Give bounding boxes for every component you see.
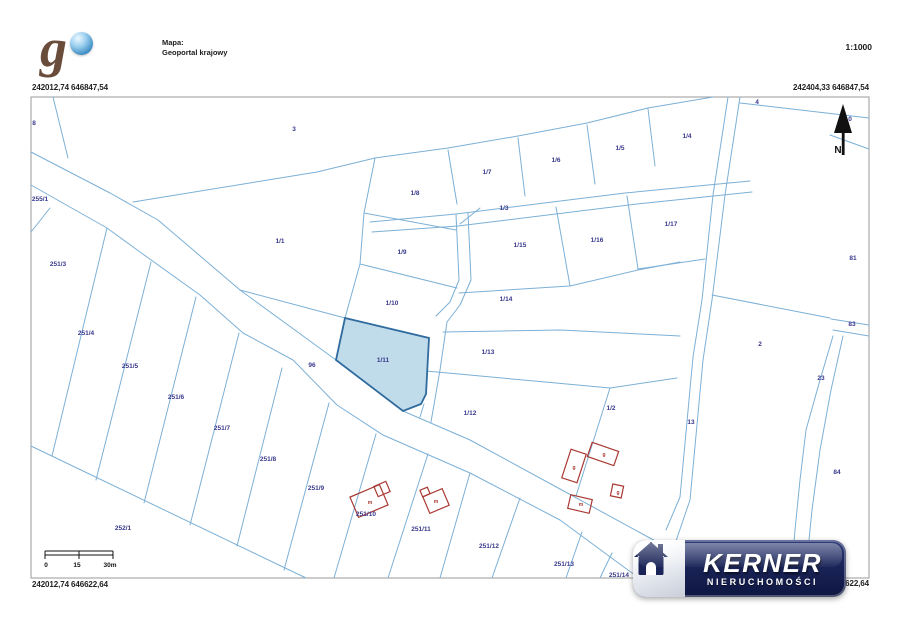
parcel-label: 255/1 [32,196,49,203]
building-label: m [579,502,584,508]
parcel-label: 251/14 [609,572,629,579]
house-icon [633,540,685,597]
parcel-label: 1/14 [500,296,513,303]
parcel-label: 2 [758,341,762,348]
parcel-label: 251/6 [168,394,185,401]
parcel-label: 1/3 [499,205,508,212]
parcel-label: 1/12 [464,410,477,417]
parcel-label: 4 [755,99,759,106]
parcel-label: 251/7 [214,425,231,432]
parcel-label: 251/3 [50,261,67,268]
parcel-label: 252/1 [115,525,132,532]
parcel-label: 1/6 [551,157,560,164]
building-label: m [368,500,373,506]
parcel-label: 96 [308,362,316,369]
parcel-label: 1/5 [615,145,624,152]
parcel-label: 251/10 [356,511,376,518]
building-label: m [434,499,439,505]
parcel-label: 3 [292,126,296,133]
parcel-label: 1/1 [275,238,284,245]
parcel-label: 1/15 [514,242,527,249]
parcel-label: 1/10 [386,300,399,307]
parcel-label: 1/2 [606,405,615,412]
parcel-label: 1/7 [482,169,491,176]
parcel-label: 84 [833,469,841,476]
parcel-label: 1/11 [377,357,390,364]
page: g Mapa: Geoportal krajowy 1:1000 242012,… [0,0,900,636]
parcel-label: 251/11 [411,526,431,533]
parcel-label: 23 [817,375,825,382]
kerner-subtitle: NIERUCHOMOŚCI [707,577,818,587]
parcel-label: 1/16 [591,237,604,244]
parcel-label: 1/4 [682,133,691,140]
parcel-label: 1/13 [482,349,495,356]
kerner-text: KERNER NIERUCHOMOŚCI [685,540,846,597]
kerner-brand: KERNER [703,551,822,576]
scalebar-label: 0 [44,562,48,569]
parcel-label: 8 [32,120,36,127]
kerner-watermark: KERNER NIERUCHOMOŚCI [633,540,846,597]
parcel-label: 13 [687,419,695,426]
scalebar-label: 15 [73,562,81,569]
parcel-label: 251/4 [78,330,95,337]
scalebar-label: 30m [103,562,116,569]
parcel-label: 1/17 [665,221,678,228]
parcel-label: 1/9 [397,249,406,256]
parcel-label: 251/9 [308,485,325,492]
parcel-label: 251/8 [260,456,277,463]
parcel-label: 0 [848,116,852,123]
north-label: N [834,145,841,156]
parcel-label: 81 [849,255,857,262]
parcel-label: 251/13 [554,561,574,568]
parcel-label: 251/12 [479,543,499,550]
building-label: g [602,452,605,458]
parcel-label: 1/8 [410,190,419,197]
parcel-label: 251/5 [122,363,139,370]
parcel-label: 83 [848,321,856,328]
building-label: g [572,465,575,471]
building-label: g [616,490,619,496]
